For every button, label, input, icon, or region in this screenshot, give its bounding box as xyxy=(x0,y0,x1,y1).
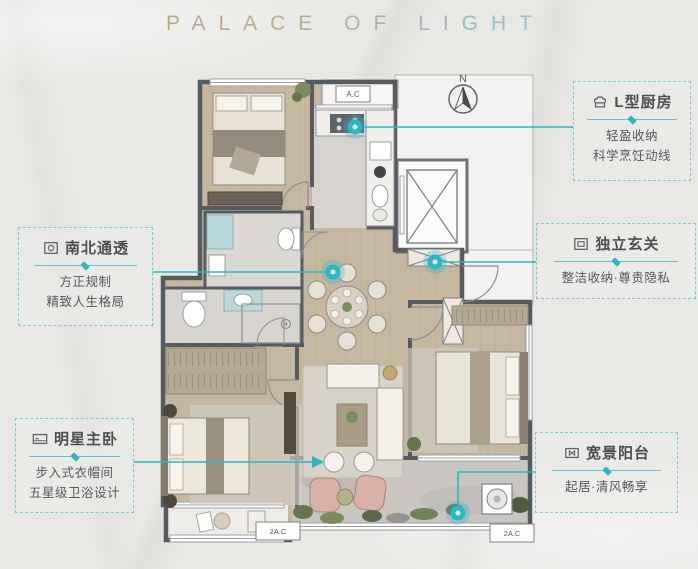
callout-foyer-title: 独立玄关 xyxy=(595,233,659,254)
divider-diamond-icon xyxy=(611,257,620,266)
hotspot-living[interactable] xyxy=(321,260,345,284)
callout-balcony-line: 起居·清风畅享 xyxy=(565,477,648,497)
layout-icon xyxy=(42,240,60,256)
callout-foyer-line: 整洁收纳·尊贵隐私 xyxy=(562,268,671,288)
callout-master-bedroom-title: 明星主卧 xyxy=(54,428,118,449)
compass-label: N xyxy=(459,73,467,85)
chef-hat-icon xyxy=(591,94,609,110)
divider-diamond-icon xyxy=(602,466,611,475)
callout-master-bedroom-line: 五星级卫浴设计 xyxy=(29,483,120,503)
callout-balcony-title: 宽景阳台 xyxy=(586,442,650,463)
ac-outdoor-unit xyxy=(482,484,512,514)
cabinet-icon xyxy=(572,236,590,252)
divider-diamond-icon xyxy=(70,452,79,461)
poster-background: PALACE OF LIGHT xyxy=(0,0,698,569)
callout-north-south-title: 南北通透 xyxy=(65,237,129,258)
ac-label-bottom-right: 2A.C xyxy=(490,524,534,542)
callout-kitchen-line: 科学烹饪动线 xyxy=(593,146,671,166)
callout-master-bedroom: 明星主卧 步入式衣帽间 五星级卫浴设计 xyxy=(15,418,134,513)
ac-top-label: A.C xyxy=(346,90,360,99)
callout-master-bedroom-line: 步入式衣帽间 xyxy=(35,463,113,483)
window-icon xyxy=(563,445,581,461)
callout-north-south-line: 精致人生格局 xyxy=(46,292,124,312)
ac-label-bottom-left: 2A.C xyxy=(256,522,300,540)
callout-divider xyxy=(29,456,120,457)
svg-text:2A.C: 2A.C xyxy=(270,527,287,536)
callout-balcony: 宽景阳台 起居·清风畅享 xyxy=(535,432,678,513)
callout-foyer: 独立玄关 整洁收纳·尊贵隐私 xyxy=(536,223,696,299)
hotspot-balcony[interactable] xyxy=(446,501,470,525)
callout-north-south: 南北通透 方正规制 精致人生格局 xyxy=(18,227,153,326)
callout-kitchen-title: L型厨房 xyxy=(614,91,672,112)
callout-divider xyxy=(552,470,662,471)
svg-text:2A.C: 2A.C xyxy=(504,529,521,538)
divider-diamond-icon xyxy=(627,115,636,124)
hotspot-foyer[interactable] xyxy=(423,250,447,274)
callout-divider xyxy=(587,119,677,120)
callout-divider xyxy=(34,265,138,266)
callout-kitchen: L型厨房 轻盈收纳 科学烹饪动线 xyxy=(573,81,691,181)
bed-icon xyxy=(31,431,49,447)
divider-diamond-icon xyxy=(81,261,90,270)
callout-north-south-line: 方正规制 xyxy=(59,272,111,292)
hotspot-kitchen[interactable] xyxy=(343,115,367,139)
callout-kitchen-line: 轻盈收纳 xyxy=(606,126,658,146)
callout-divider xyxy=(554,261,677,262)
elevator-shaft xyxy=(397,160,467,252)
